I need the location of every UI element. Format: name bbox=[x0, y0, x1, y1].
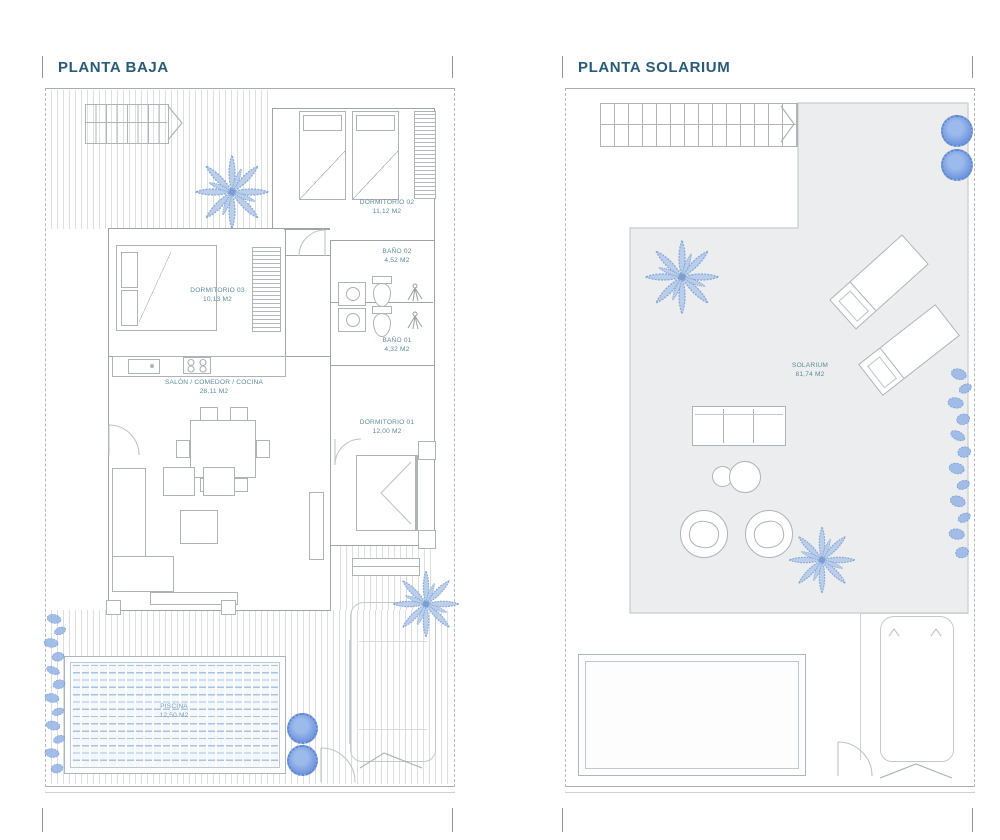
kitchen-sink bbox=[128, 359, 160, 374]
blanket-fold bbox=[357, 456, 415, 530]
label-salon: SALÓN / COMEDOR / COCINA 28,11 M2 bbox=[155, 379, 273, 396]
blanket-fold bbox=[353, 151, 398, 199]
sidewalk-line-solarium bbox=[565, 792, 975, 793]
step-line bbox=[353, 566, 419, 567]
chair bbox=[230, 407, 248, 421]
survey-tick bbox=[452, 808, 453, 832]
survey-tick bbox=[42, 808, 43, 832]
windshield-line bbox=[359, 641, 427, 642]
room-area: 12,00 M2 bbox=[347, 428, 427, 437]
palm-tree-icon bbox=[642, 237, 722, 317]
label-solarium: SOLARIUM 81,74 M2 bbox=[768, 362, 852, 379]
title-tick-right-baja bbox=[452, 56, 453, 78]
nightstand-2 bbox=[418, 530, 436, 549]
hedge-icon bbox=[948, 366, 974, 571]
sink-bano01 bbox=[338, 308, 366, 332]
label-dormitorio-01: DORMITORIO 01 12,00 M2 bbox=[347, 419, 427, 436]
door-arc-baja bbox=[320, 744, 356, 782]
sink-bano02 bbox=[338, 282, 366, 306]
staircase bbox=[600, 103, 798, 147]
title-tick-left-baja bbox=[42, 56, 43, 78]
shower-icon-bano02 bbox=[404, 282, 426, 304]
pillow-1 bbox=[121, 252, 138, 288]
hedge-icon bbox=[44, 612, 68, 784]
door-leaf bbox=[309, 492, 324, 560]
stair-arrow-icon bbox=[780, 104, 796, 144]
round-chair-1 bbox=[680, 510, 728, 558]
plan-baja-title: PLANTA BAJA bbox=[58, 59, 169, 76]
sink-basin bbox=[346, 313, 360, 327]
wardrobe-d02 bbox=[414, 111, 436, 199]
room-area: 11,12 M2 bbox=[347, 208, 427, 217]
bush-icon bbox=[941, 149, 973, 181]
yard-wall-solarium-h bbox=[860, 613, 968, 614]
room-area: 4,52 M2 bbox=[362, 257, 432, 266]
blanket-fold bbox=[300, 151, 345, 199]
gate-icon-baja bbox=[356, 748, 426, 772]
coffee-table bbox=[180, 510, 218, 544]
chair bbox=[200, 407, 218, 421]
label-dormitorio-02: DORMITORIO 02 11,12 M2 bbox=[347, 199, 427, 216]
pool-inner-edge bbox=[585, 661, 799, 769]
room-name: BAÑO 02 bbox=[362, 248, 432, 257]
pergola-midline bbox=[85, 122, 167, 123]
pillar-2 bbox=[221, 600, 236, 615]
label-bano-01: BAÑO 01 4,32 M2 bbox=[362, 337, 432, 354]
sidewalk-line-baja bbox=[45, 792, 455, 793]
room-name: DORMITORIO 01 bbox=[347, 419, 427, 428]
pergola-grid bbox=[85, 104, 169, 144]
pool-outline-solarium bbox=[578, 654, 806, 776]
label-bano-02: BAÑO 02 4,52 M2 bbox=[362, 248, 432, 265]
armchair-1 bbox=[163, 467, 195, 496]
shower-icon-bano01 bbox=[404, 310, 426, 332]
sink-basin bbox=[346, 287, 360, 301]
single-bed-1 bbox=[299, 111, 346, 200]
pillow bbox=[303, 115, 342, 131]
pillow bbox=[356, 115, 395, 131]
rear-line bbox=[359, 729, 427, 730]
outdoor-sofa bbox=[692, 406, 786, 446]
chevron-mark-icon bbox=[930, 628, 942, 637]
yard-wall-baja bbox=[349, 640, 350, 744]
floorplan-sheet: PLANTA BAJA bbox=[0, 0, 1000, 840]
room-area: 4,32 M2 bbox=[362, 346, 432, 355]
door-arc-d01 bbox=[334, 438, 362, 466]
armchair-2 bbox=[203, 467, 235, 496]
chair-seat bbox=[752, 518, 787, 551]
door-arc-patio bbox=[108, 424, 140, 456]
chair-seat bbox=[687, 519, 721, 551]
chair bbox=[256, 440, 270, 458]
room-name: BAÑO 01 bbox=[362, 337, 432, 346]
palm-tree-icon bbox=[786, 524, 858, 596]
pillow-2 bbox=[121, 290, 138, 326]
label-piscina: PISCINA 12,50 M2 bbox=[134, 703, 214, 720]
backrest-line bbox=[695, 414, 783, 415]
room-name: DORMITORIO 03 bbox=[170, 287, 265, 296]
title-tick-left-solarium bbox=[562, 56, 563, 78]
plan-solarium-title: PLANTA SOLARIUM bbox=[578, 59, 730, 76]
car-outline-solarium bbox=[880, 616, 954, 762]
stair-midline bbox=[600, 124, 796, 125]
room-area: 10,13 M2 bbox=[170, 296, 265, 305]
nightstand-1 bbox=[418, 441, 436, 460]
door-arc-hall bbox=[298, 229, 326, 257]
room-area: 12,50 M2 bbox=[134, 712, 214, 721]
room-area: 81,74 M2 bbox=[768, 371, 852, 380]
sofa-corner bbox=[112, 556, 174, 592]
single-bed-2 bbox=[352, 111, 399, 200]
palm-tree-icon bbox=[390, 568, 462, 640]
bush-icon bbox=[287, 713, 318, 744]
blanket-fold bbox=[139, 252, 171, 322]
faucet bbox=[150, 364, 154, 368]
room-name: SALÓN / COMEDOR / COCINA bbox=[155, 379, 273, 388]
label-dormitorio-03: DORMITORIO 03 10,13 M2 bbox=[170, 287, 265, 304]
bush-icon bbox=[287, 745, 318, 776]
room-area: 28,11 M2 bbox=[155, 388, 273, 397]
pillar-1 bbox=[106, 600, 121, 615]
room-name: PISCINA bbox=[134, 703, 214, 712]
survey-tick bbox=[562, 808, 563, 832]
chevron-mark-icon bbox=[888, 628, 900, 637]
gate-icon-solarium bbox=[878, 758, 954, 780]
palm-tree-icon bbox=[192, 152, 272, 232]
survey-tick bbox=[972, 808, 973, 832]
room-name: SOLARIUM bbox=[768, 362, 852, 371]
room-name: DORMITORIO 02 bbox=[347, 199, 427, 208]
double-bed-d01 bbox=[356, 455, 418, 531]
title-tick-right-solarium bbox=[972, 56, 973, 78]
yard-wall-solarium-v bbox=[860, 613, 861, 760]
stove bbox=[183, 357, 211, 374]
chair bbox=[176, 440, 190, 458]
side-table-large bbox=[729, 461, 761, 493]
bush-icon bbox=[941, 115, 973, 147]
door-arc-solarium bbox=[837, 742, 873, 778]
pergola-arrow-icon bbox=[167, 104, 185, 142]
